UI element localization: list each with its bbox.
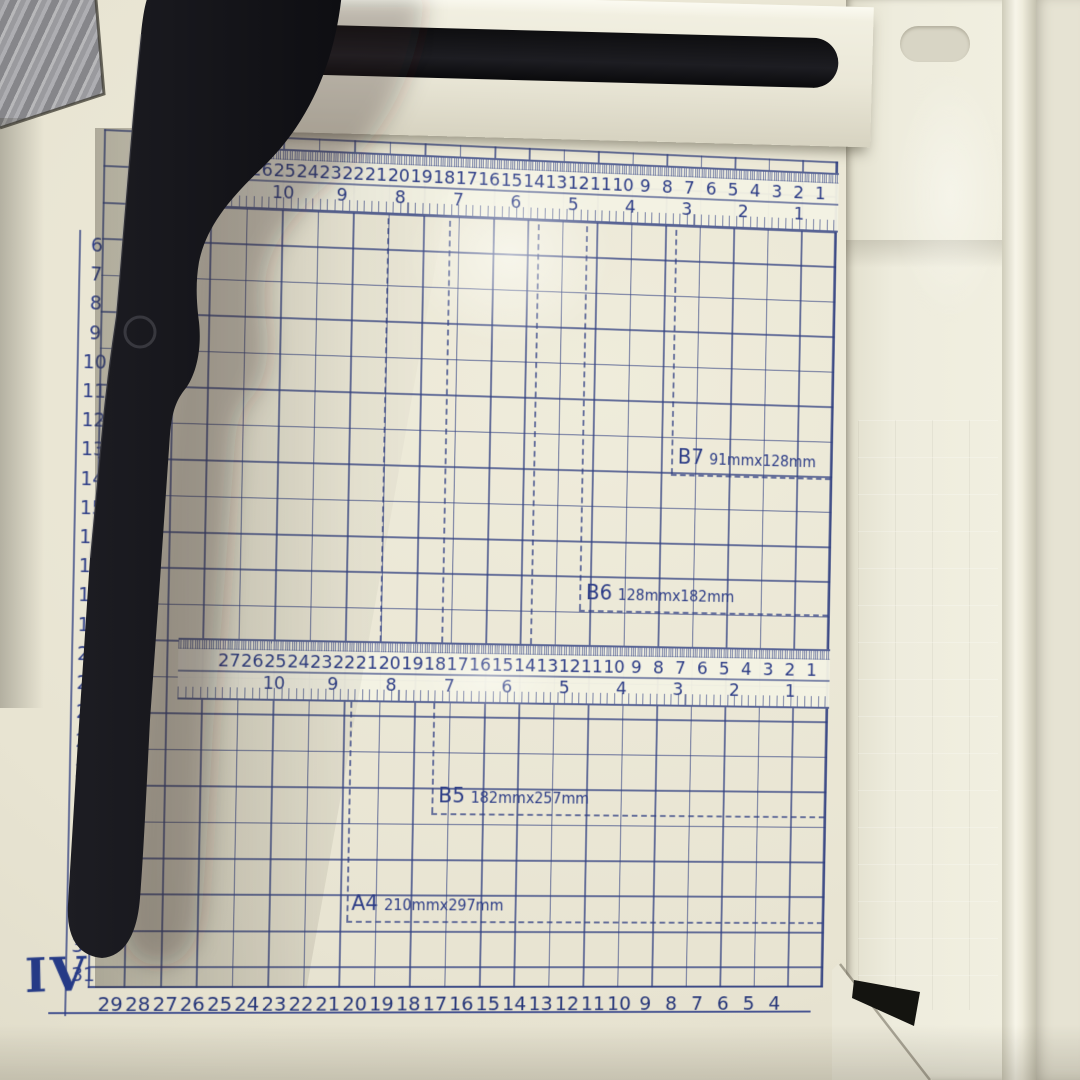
bottom-scale-number: 5 <box>742 993 754 1012</box>
size-code: A4 <box>351 891 378 915</box>
bottom-scale-number: 22 <box>288 994 313 1014</box>
right-side-panel <box>1036 0 1080 1080</box>
bottom-scale-number: 27 <box>152 994 178 1014</box>
bottom-scale-number: 7 <box>691 993 703 1012</box>
floor-background <box>0 0 120 132</box>
size-dims: 128mmx182mm <box>618 586 735 606</box>
fence-seam-shadow <box>846 240 1006 268</box>
bottom-scale-number: 14 <box>502 994 527 1014</box>
size-label-b5: B5182mmx257mm <box>438 784 589 809</box>
fence-embossed-grid <box>858 420 998 1010</box>
bottom-scale-number: 13 <box>528 994 553 1014</box>
bottom-scale-number: 15 <box>476 994 501 1014</box>
right-side-rail <box>1002 0 1036 1080</box>
bottom-scale-number: 12 <box>555 994 579 1014</box>
size-code: B7 <box>678 445 704 469</box>
bottom-scale-number: 11 <box>581 993 605 1013</box>
fence-screw-divot <box>900 26 970 62</box>
size-dims: 210mmx297mm <box>384 896 504 914</box>
size-label-a4: A4210mmx297mm <box>351 891 504 915</box>
bottom-scale-number: 19 <box>369 994 394 1014</box>
roman-numeral-iv: IV <box>24 947 89 1004</box>
bottom-scale-number: 18 <box>396 994 421 1014</box>
bottom-scale-number: 29 <box>97 994 123 1014</box>
bottom-scale-number: 28 <box>125 994 151 1014</box>
bottom-scale-number: 4 <box>768 993 780 1012</box>
bottom-scale-number: 26 <box>180 994 205 1014</box>
bottom-scale-number: 8 <box>665 993 677 1012</box>
size-dims: 91mmx128mm <box>709 451 816 471</box>
bottom-scale-number: 21 <box>315 994 340 1014</box>
bottom-scale-number: 24 <box>234 994 259 1014</box>
clamp-bar <box>206 0 873 147</box>
size-label-b7: B791mmx128mm <box>678 445 817 472</box>
bottom-scale-number: 25 <box>207 994 232 1014</box>
bottom-scale-number: 17 <box>422 994 447 1014</box>
bottom-scale-number: 23 <box>261 994 286 1014</box>
size-code: B6 <box>586 581 613 605</box>
bottom-scale-number: 20 <box>342 994 367 1014</box>
bottom-scale-number: 16 <box>449 994 474 1014</box>
clamp-bar-slot <box>252 23 839 88</box>
blade-notch <box>832 962 1080 1080</box>
size-label-b6: B6128mmx182mm <box>586 581 735 607</box>
bottom-scale-number: 6 <box>717 993 729 1012</box>
bottom-scale-number: 9 <box>639 993 651 1012</box>
paper-cutter-photo: 2726252423222120191817161514131211109876… <box>0 0 1080 1080</box>
bottom-scale-number: 10 <box>607 993 631 1012</box>
size-dims: 182mmx257mm <box>471 789 590 808</box>
size-code: B5 <box>438 784 465 808</box>
